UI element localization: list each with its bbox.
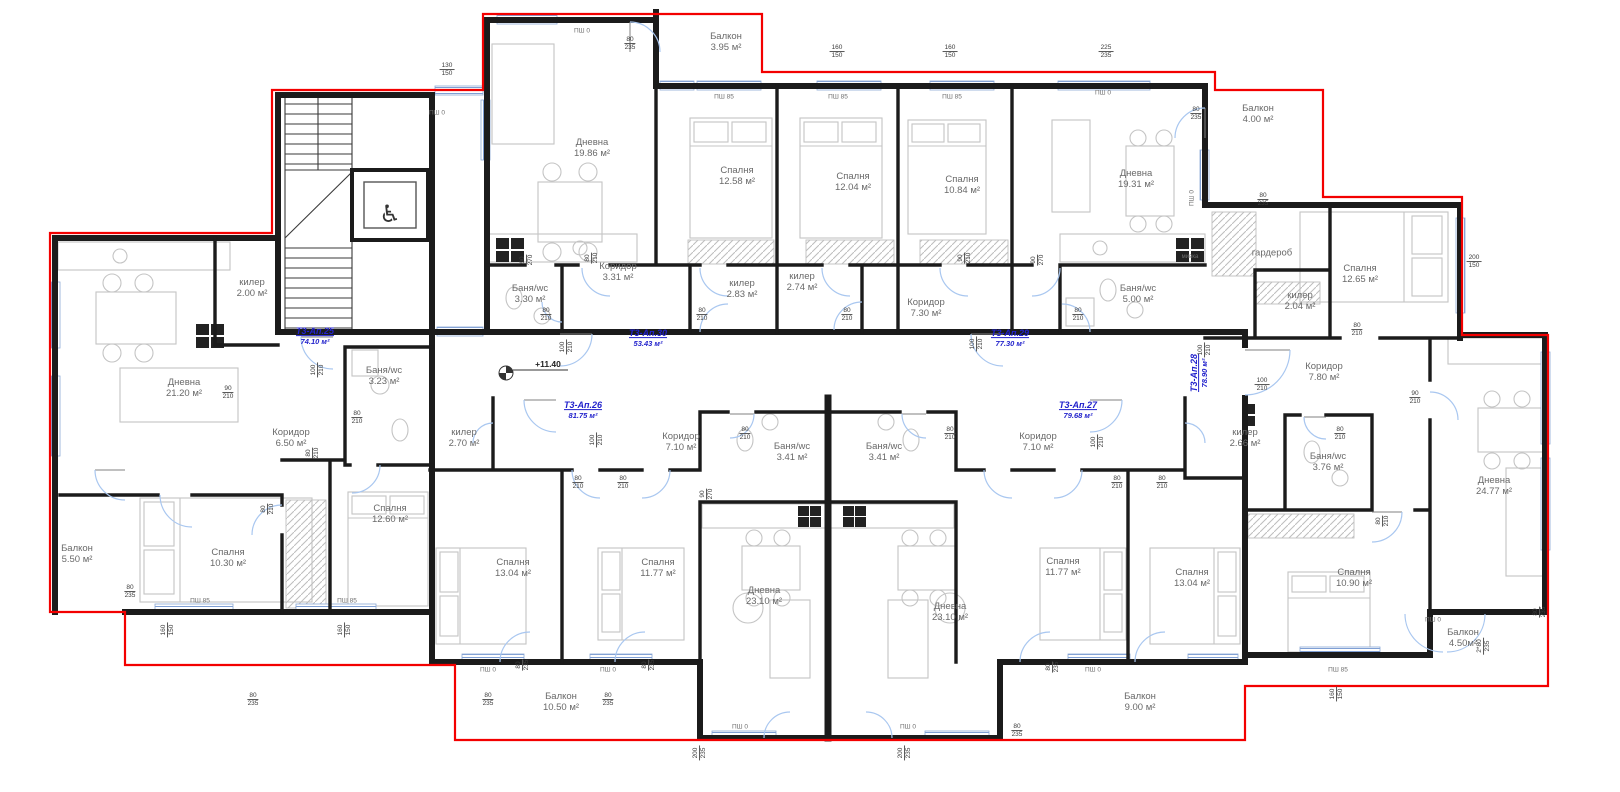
room-name: Дневна [574, 137, 610, 148]
dimension-height: 235 [1541, 606, 1548, 617]
room-label: Дневна19.86 м² [574, 137, 610, 159]
dimension-width: 80 [247, 692, 258, 700]
room-name: Балкон [543, 691, 579, 702]
dimension-label: 90270 [519, 254, 535, 265]
room-area: 10.30 м² [210, 558, 246, 569]
room-label: килер2.83 м² [727, 278, 758, 300]
room-area: 7.80 м² [1305, 372, 1343, 383]
dimension-height: 210 [572, 484, 583, 491]
apartment-area: 78.90 м² [1200, 354, 1209, 392]
window-sill-label: ПШ 0 [900, 724, 916, 731]
dimension-height: 270 [708, 488, 715, 499]
dimension-height: 235 [524, 659, 531, 670]
dimension-width: 100 [589, 433, 597, 448]
room-name: Спалня [1336, 567, 1372, 578]
dimension-height: 210 [1255, 386, 1270, 393]
dimension-width: 80 [602, 692, 613, 700]
dimension-width: 100 [310, 363, 318, 378]
room-label: килер2.70 м² [449, 427, 480, 449]
dimension-width: 160 [160, 623, 168, 638]
dimension-height: 150 [830, 53, 845, 60]
room-area: 10.90 м² [1336, 578, 1372, 589]
room-area: 2.83 м² [727, 289, 758, 300]
dimension-height: 210 [568, 340, 575, 355]
room-area: 4.50м² [1447, 638, 1479, 649]
dimension-width: 200 [1467, 254, 1482, 262]
window-sill-label: ПШ 85 [190, 598, 210, 605]
dimension-label: 80235 [515, 659, 531, 670]
dimension-height: 235 [602, 701, 613, 708]
dimension-label: 225235 [1099, 44, 1114, 60]
dimension-label: 80235 [124, 584, 135, 600]
apartment-area: 53.43 м² [629, 339, 667, 348]
room-name: Баня/wc [1120, 283, 1156, 294]
room-label: килер2.74 м² [787, 271, 818, 293]
room-name: Спалня [210, 547, 246, 558]
room-name: Спалня [1342, 263, 1378, 274]
window-sill-label: ПШ 85 [714, 94, 734, 101]
dimension-width: 160 [337, 623, 345, 638]
room-label: Баня/wc5.00 м² [1120, 283, 1156, 305]
window-sill-label: ПШ 0 [1095, 90, 1111, 97]
apartment-id: Т3-Ап.25 [296, 326, 334, 337]
room-name: Баня/wc [866, 441, 902, 452]
window-sill-label: ПШ 0 [732, 724, 748, 731]
dimension-label: 200235 [897, 746, 913, 761]
dimension-height: 235 [1011, 732, 1022, 739]
dimension-width: 80 [944, 426, 955, 434]
dimension-label: 80210 [1111, 475, 1122, 491]
dimension-label: 80210 [1072, 307, 1083, 323]
dimension-width: 200 [692, 746, 700, 761]
room-name: Спалня [1174, 567, 1210, 578]
dimension-height: 210 [978, 337, 985, 352]
room-area: 7.30 м² [907, 308, 945, 319]
dimension-height: 235 [1054, 661, 1061, 672]
room-name: Баня/wc [512, 283, 548, 294]
dimension-width: 80 [739, 426, 750, 434]
dimension-label: 100210 [969, 337, 985, 352]
room-name: Дневна [932, 601, 968, 612]
room-name: Баня/wc [774, 441, 810, 452]
dimension-label: 80235 [1532, 606, 1548, 617]
room-label: Спалня12.60 м² [372, 503, 408, 525]
room-name: Коридор [907, 297, 945, 308]
room-label: Спалня12.65 м² [1342, 263, 1378, 285]
dimension-height: 210 [617, 484, 628, 491]
dimension-label: 80210 [617, 475, 628, 491]
room-area: 5.50 м² [61, 554, 93, 565]
room-label: Баня/wc3.41 м² [866, 441, 902, 463]
dimension-height: 235 [906, 746, 913, 761]
dimension-label: 160150 [1329, 687, 1345, 702]
room-name: килер [1230, 427, 1261, 438]
dimension-height: 210 [1099, 435, 1106, 450]
dimension-width: 80 [572, 475, 583, 483]
window-sill-label: ПШ 0 [1189, 190, 1196, 206]
dimension-label: 80210 [572, 475, 583, 491]
room-area: 7.10 м² [1019, 442, 1057, 453]
dimension-height: 235 [482, 701, 493, 708]
dimension-height: 210 [351, 419, 362, 426]
room-area: 11.77 м² [640, 568, 675, 579]
room-label: Спалня12.58 м² [719, 165, 755, 187]
room-label: Спалня10.84 м² [944, 174, 980, 196]
room-area: 23.10 м² [932, 612, 968, 623]
room-name: Спалня [944, 174, 980, 185]
room-label: килер2.00 м² [237, 277, 268, 299]
apartment-label: Т3-Ап.2779.68 м² [1059, 400, 1097, 420]
dimension-height: 235 [1190, 115, 1201, 122]
dimension-height: 210 [944, 435, 955, 442]
dimension-width: 100 [559, 340, 567, 355]
window-sill-label: ПШ 0 [574, 28, 590, 35]
dimension-label: 80235 [641, 659, 657, 670]
room-label: килер2.66 м² [1230, 427, 1261, 449]
dimension-label: 80235 [1011, 723, 1022, 739]
dimension-label: 160150 [160, 623, 176, 638]
dimension-width: 100 [1197, 343, 1205, 358]
dimension-label: 200235 [692, 746, 708, 761]
dimension-label: 80235 [1190, 106, 1201, 122]
dimension-height: 210 [1384, 515, 1391, 526]
room-area: 13.04 м² [1174, 578, 1210, 589]
room-label: Коридор7.30 м² [907, 297, 945, 319]
dimension-label: 80210 [1334, 426, 1345, 442]
dimension-label: 80210 [584, 252, 600, 263]
dimension-width: 90 [957, 252, 965, 263]
dimension-height: 270 [528, 254, 535, 265]
room-area: 3.76 м² [1310, 462, 1346, 473]
dimension-width: 2*80 [1476, 637, 1484, 654]
dimension-width: 80 [1045, 661, 1053, 672]
room-label: Дневна19.31 м² [1118, 168, 1154, 190]
window-sill-label: ПШ 0 [1425, 617, 1441, 624]
dimension-width: 80 [1334, 426, 1345, 434]
dimension-height: 270 [1039, 254, 1046, 265]
dimension-width: 80 [1011, 723, 1022, 731]
apartment-id: Т3-Ап.27 [1059, 400, 1097, 411]
dimension-width: 80 [1532, 606, 1540, 617]
room-name: килер [727, 278, 758, 289]
dimension-width: 80 [1111, 475, 1122, 483]
room-label: Балкон4.00 м² [1242, 103, 1274, 125]
room-area: 9.00 м² [1124, 702, 1156, 713]
room-label: Баня/wc3.23 м² [366, 365, 402, 387]
room-name: Коридор [599, 261, 637, 272]
dimension-label: 80235 [1257, 192, 1268, 208]
dimension-height: 210 [696, 316, 707, 323]
dimension-label: 100210 [1255, 377, 1270, 393]
room-name: Спалня [1045, 556, 1080, 567]
dimension-label: 100210 [559, 340, 575, 355]
dimension-label: 80210 [944, 426, 955, 442]
dimension-width: 80 [1156, 475, 1167, 483]
dimension-width: 100 [1255, 377, 1270, 385]
window-sill-label: ПШ 0 [600, 667, 616, 674]
window-sill-label: ПШ 85 [942, 94, 962, 101]
dimension-label: 100210 [310, 363, 326, 378]
level-marker-text: +11.40 [535, 359, 561, 369]
dimension-label: 80210 [351, 410, 362, 426]
room-area: 2.00 м² [237, 288, 268, 299]
dimension-height: 235 [650, 659, 657, 670]
room-area: 4.00 м² [1242, 114, 1274, 125]
room-label: Балкон10.50 м² [543, 691, 579, 713]
dimension-height: 150 [1338, 687, 1345, 702]
dimension-height: 210 [739, 435, 750, 442]
room-name: Коридор [1019, 431, 1057, 442]
dimension-label: 100210 [1090, 435, 1106, 450]
dimension-label: 80210 [260, 503, 276, 514]
room-label: Коридор7.10 м² [1019, 431, 1057, 453]
room-name: Дневна [746, 585, 782, 596]
room-name: Балкон [61, 543, 93, 554]
room-name: Балкон [710, 31, 742, 42]
room-area: 12.04 м² [835, 182, 871, 193]
dimension-width: 80 [305, 447, 313, 458]
room-name: Дневна [166, 377, 202, 388]
labels-overlay: Дневна19.86 м²Спалня12.58 м²Спалня12.04 … [0, 0, 1620, 792]
apartment-label: Т3-Ап.2574.10 м² [296, 326, 334, 346]
room-name: Баня/wc [1310, 451, 1346, 462]
room-label: Спалня13.04 м² [495, 557, 531, 579]
room-name: Спалня [835, 171, 871, 182]
dimension-width: 225 [1099, 44, 1114, 52]
dimension-height: 210 [314, 447, 321, 458]
dimension-label: 80210 [841, 307, 852, 323]
dimension-width: 90 [1409, 390, 1420, 398]
dimension-width: 80 [1351, 322, 1362, 330]
dimension-width: 160 [1329, 687, 1337, 702]
room-area: 19.86 м² [574, 148, 610, 159]
apartment-label: Т3-Ап.2977.30 м² [991, 328, 1029, 348]
dimension-width: 160 [943, 44, 958, 52]
room-name: Коридор [1305, 361, 1343, 372]
dimension-label: 200150 [1467, 254, 1482, 270]
dimension-label: 2*80235 [1476, 637, 1492, 654]
room-area: 2.70 м² [449, 438, 480, 449]
dimension-height: 235 [624, 45, 635, 52]
room-name: Дневна [1476, 475, 1512, 486]
dimension-label: 80210 [1156, 475, 1167, 491]
room-name: Дневна [1118, 168, 1154, 179]
room-label: килер2.04 м² [1285, 290, 1316, 312]
dimension-width: 80 [624, 36, 635, 44]
room-area: 13.04 м² [495, 568, 531, 579]
dimension-height: 210 [1156, 484, 1167, 491]
fixture-label: мивка [1182, 254, 1199, 260]
dimension-label: 80235 [624, 36, 635, 52]
dimension-label: 90210 [1409, 390, 1420, 406]
room-label: Дневна21.20 м² [166, 377, 202, 399]
dimension-width: 80 [617, 475, 628, 483]
dimension-label: 160150 [830, 44, 845, 60]
dimension-height: 235 [701, 746, 708, 761]
room-area: 3.23 м² [366, 376, 402, 387]
dimension-label: 160150 [943, 44, 958, 60]
dimension-width: 80 [1190, 106, 1201, 114]
apartment-label: Т3-Ап.3053.43 м² [629, 328, 667, 348]
dimension-label: 80210 [739, 426, 750, 442]
room-area: 11.77 м² [1045, 567, 1080, 578]
apartment-area: 77.30 м² [991, 339, 1029, 348]
dimension-width: 80 [641, 659, 649, 670]
dimension-height: 210 [1072, 316, 1083, 323]
room-name: Балкон [1124, 691, 1156, 702]
room-label: Балкон4.50м² [1447, 627, 1479, 649]
dimension-label: 80235 [1045, 661, 1061, 672]
dimension-width: 80 [540, 307, 551, 315]
dimension-label: 160150 [337, 623, 353, 638]
room-area: 21.20 м² [166, 388, 202, 399]
apartment-id: Т3-Ап.26 [564, 400, 602, 411]
room-label: Спалня10.30 м² [210, 547, 246, 569]
room-name: килер [237, 277, 268, 288]
room-label: Коридор3.31 м² [599, 261, 637, 283]
dimension-label: 80210 [1375, 515, 1391, 526]
window-sill-label: ПШ 0 [429, 110, 445, 117]
apartment-id: Т3-Ап.28 [1189, 354, 1200, 392]
room-area: 2.74 м² [787, 282, 818, 293]
dimension-height: 150 [943, 53, 958, 60]
dimension-width: 80 [1375, 515, 1383, 526]
room-label: Дневна23.10 м² [746, 585, 782, 607]
dimension-label: 90270 [1030, 254, 1046, 265]
dimension-width: 80 [841, 307, 852, 315]
dimension-height: 210 [966, 252, 973, 263]
room-area: 3.30 м² [512, 294, 548, 305]
room-label: Спалня10.90 м² [1336, 567, 1372, 589]
dimension-label: 80210 [540, 307, 551, 323]
room-label: Баня/wc3.30 м² [512, 283, 548, 305]
room-name: Коридор [662, 431, 700, 442]
room-name: килер [787, 271, 818, 282]
dimension-height: 210 [1409, 399, 1420, 406]
room-area: 24.77 м² [1476, 486, 1512, 497]
dimension-label: 80210 [696, 307, 707, 323]
dimension-width: 100 [969, 337, 977, 352]
room-label: Спалня12.04 м² [835, 171, 871, 193]
room-area: 12.58 м² [719, 176, 755, 187]
dimension-width: 80 [515, 659, 523, 670]
room-label: Балкон3.95 м² [710, 31, 742, 53]
dimension-height: 210 [1206, 343, 1213, 358]
window-sill-label: ПШ 85 [1328, 667, 1348, 674]
window-sill-label: ПШ 85 [337, 598, 357, 605]
dimension-height: 235 [124, 593, 135, 600]
dimension-width: 80 [260, 503, 268, 514]
dimension-width: 90 [519, 254, 527, 265]
dimension-label: 90270 [699, 488, 715, 499]
apartment-label: Т3-Ап.2878.90 м² [1189, 354, 1209, 392]
dimension-width: 80 [124, 584, 135, 592]
window-sill-label: ПШ 0 [480, 667, 496, 674]
room-area: 7.10 м² [662, 442, 700, 453]
room-area: 3.41 м² [774, 452, 810, 463]
dimension-width: 200 [897, 746, 905, 761]
room-label: Дневна23.10 м² [932, 601, 968, 623]
dimension-height: 210 [319, 363, 326, 378]
room-area: 5.00 м² [1120, 294, 1156, 305]
dimension-width: 130 [440, 62, 455, 70]
dimension-label: 90210 [957, 252, 973, 263]
apartment-id: Т3-Ап.30 [629, 328, 667, 339]
room-label: Спалня11.77 м² [640, 557, 675, 579]
dimension-height: 210 [1334, 435, 1345, 442]
dimension-label: 80235 [602, 692, 613, 708]
apartment-area: 79.68 м² [1059, 411, 1097, 420]
room-label: Балкон9.00 м² [1124, 691, 1156, 713]
apartment-label: Т3-Ап.2681.75 м² [564, 400, 602, 420]
dimension-label: 80210 [1351, 322, 1362, 338]
dimension-height: 210 [598, 433, 605, 448]
room-name: Спалня [640, 557, 675, 568]
dimension-width: 90 [699, 488, 707, 499]
apartment-id: Т3-Ап.29 [991, 328, 1029, 339]
room-name: килер [1285, 290, 1316, 301]
room-area: 12.65 м² [1342, 274, 1378, 285]
room-label: Баня/wc3.41 м² [774, 441, 810, 463]
room-label: Коридор6.50 м² [272, 427, 310, 449]
window-sill-label: ПШ 85 [828, 94, 848, 101]
dimension-width: 90 [222, 385, 233, 393]
room-name: Баня/wc [366, 365, 402, 376]
dimension-width: 80 [696, 307, 707, 315]
room-label: Коридор7.10 м² [662, 431, 700, 453]
dimension-height: 235 [1485, 637, 1492, 654]
room-area: 19.31 м² [1118, 179, 1154, 190]
dimension-height: 210 [1111, 484, 1122, 491]
room-label: Спалня13.04 м² [1174, 567, 1210, 589]
dimension-label: 80235 [482, 692, 493, 708]
dimension-height: 210 [540, 316, 551, 323]
room-name: Спалня [719, 165, 755, 176]
dimension-label: 90210 [222, 385, 233, 401]
room-label: Балкон5.50 м² [61, 543, 93, 565]
dimension-height: 150 [1467, 263, 1482, 270]
room-area: 10.50 м² [543, 702, 579, 713]
room-area: 12.60 м² [372, 514, 408, 525]
room-name: Спалня [495, 557, 531, 568]
dimension-height: 210 [593, 252, 600, 263]
room-label: Коридор7.80 м² [1305, 361, 1343, 383]
room-name: Балкон [1447, 627, 1479, 638]
apartment-area: 74.10 м² [296, 337, 334, 346]
room-area: 3.31 м² [599, 272, 637, 283]
dimension-width: 100 [1090, 435, 1098, 450]
dimension-label: 100210 [589, 433, 605, 448]
room-area: 2.66 м² [1230, 438, 1261, 449]
dimension-height: 210 [1351, 331, 1362, 338]
dimension-width: 80 [351, 410, 362, 418]
room-name: Спалня [372, 503, 408, 514]
dimension-label: 80235 [247, 692, 258, 708]
apartment-area: 81.75 м² [564, 411, 602, 420]
dimension-height: 150 [169, 623, 176, 638]
dimension-width: 80 [482, 692, 493, 700]
dimension-height: 235 [1257, 201, 1268, 208]
room-label: Баня/wc3.76 м² [1310, 451, 1346, 473]
room-name: Балкон [1242, 103, 1274, 114]
floor-plan-canvas: ♿ Дневна19.86 м²Спалня12.58 м²Спалня12.0… [0, 0, 1620, 792]
room-label: гардероб [1252, 247, 1292, 258]
dimension-label: 130150 [440, 62, 455, 78]
dimension-height: 210 [841, 316, 852, 323]
room-name: килер [449, 427, 480, 438]
room-area: 10.84 м² [944, 185, 980, 196]
dimension-height: 235 [247, 701, 258, 708]
